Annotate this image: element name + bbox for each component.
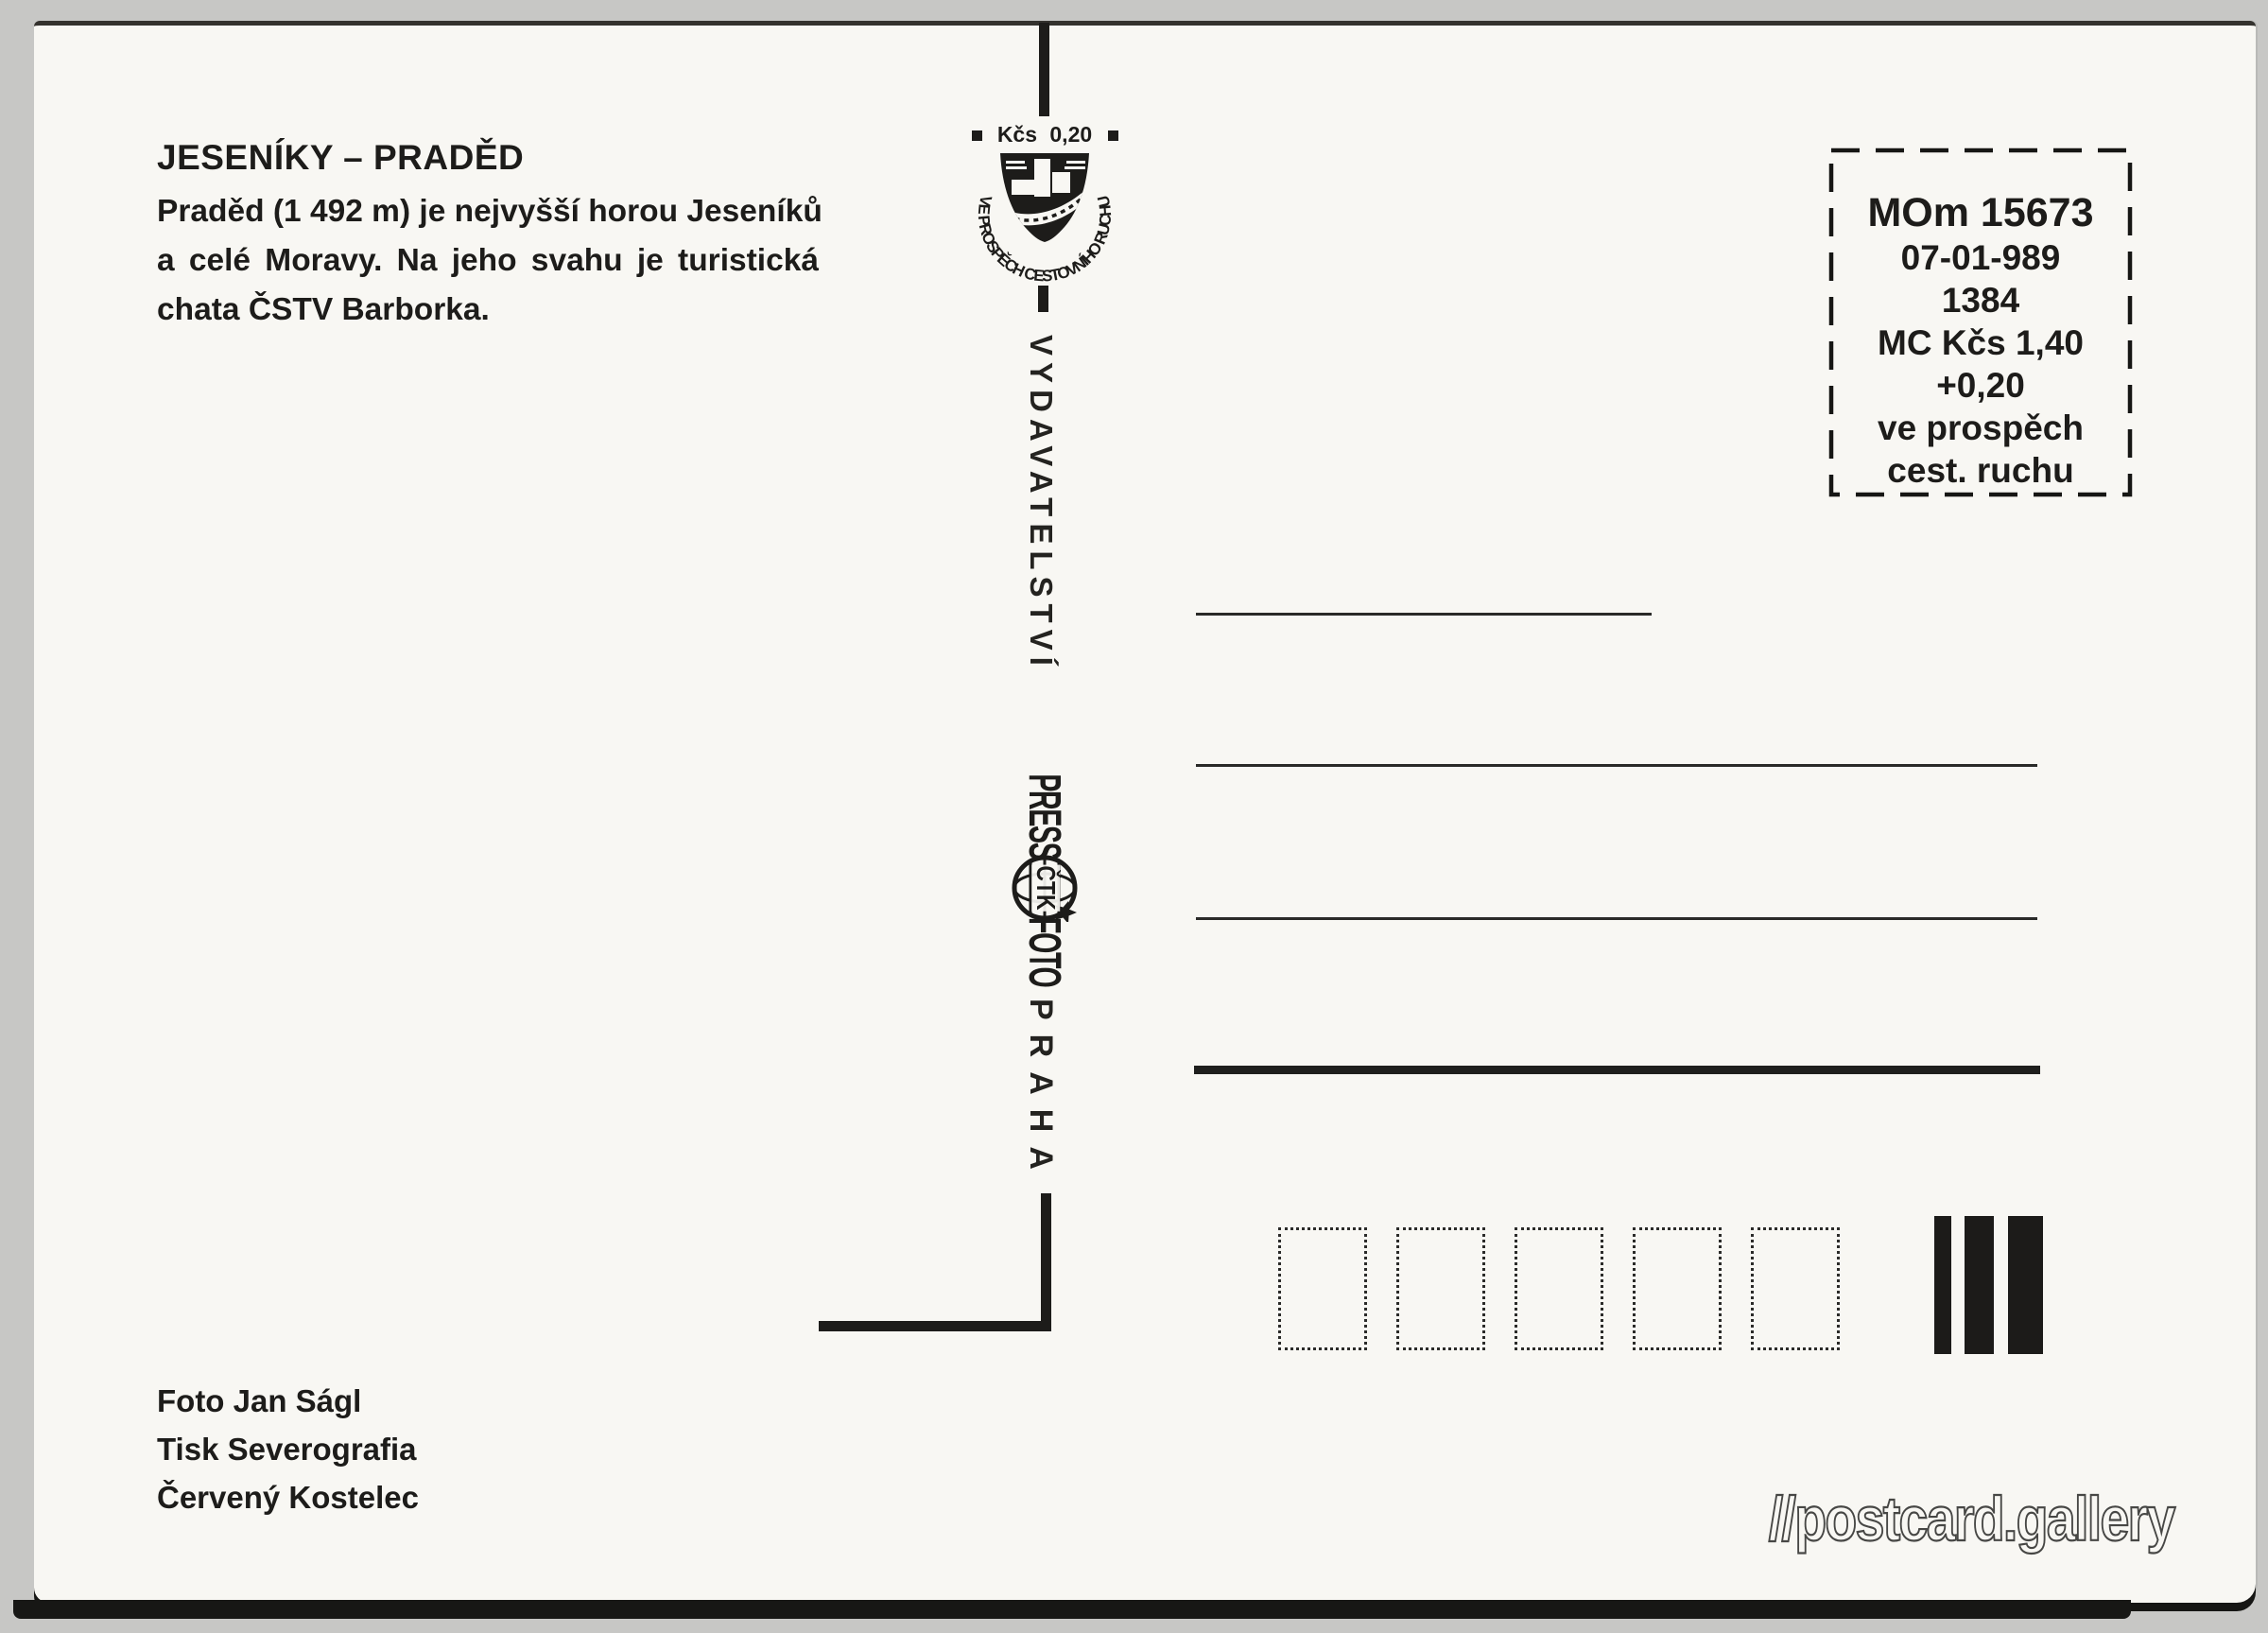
credit-line: Červený Kostelec	[157, 1473, 419, 1521]
franking-line: 07-01-989	[1828, 236, 2133, 279]
publisher-vertical-text: VYDAVATELSTVÍ	[1023, 335, 1059, 672]
franking-bar	[1965, 1216, 1994, 1354]
stamp-square-right	[1108, 130, 1118, 141]
franking-bar	[2008, 1216, 2043, 1354]
franking-line: MOm 15673	[1828, 189, 2133, 236]
press-logo-foto: FOTO	[1018, 917, 1070, 986]
gallery-watermark: //postcard.gallery	[1769, 1483, 2170, 1555]
description-line: chata ČSTV Barborka.	[157, 286, 819, 335]
pressfoto-ctk-logo: PRESS ČTK FOTO	[1007, 758, 1082, 995]
postal-code-box	[1633, 1227, 1722, 1350]
description-line: a celé Moravy. Na jeho svahu je turistic…	[157, 236, 819, 286]
postcard-title: JESENÍKY – PRADĚD	[157, 138, 524, 178]
divider-bottom-arm	[819, 1321, 1051, 1331]
city-vertical-text: PRAHA	[1022, 999, 1059, 1184]
ctk-label: ČTK	[1031, 865, 1060, 912]
globe-icon: ČTK	[1011, 854, 1079, 922]
postal-code-box	[1515, 1227, 1603, 1350]
postal-code-box	[1278, 1227, 1367, 1350]
franking-bar	[1934, 1216, 1951, 1354]
address-line-thick	[1194, 1066, 2040, 1074]
description-line: Praděd (1 492 m) je nejvyšší horou Jesen…	[157, 187, 819, 236]
printer-credits: Foto Jan Ságl Tisk Severografia Červený …	[157, 1377, 419, 1521]
divider-top-bar	[1039, 23, 1049, 116]
franking-line: 1384	[1828, 279, 2133, 321]
address-line	[1196, 613, 1652, 616]
address-line	[1196, 764, 2037, 767]
franking-line: MC Kčs 1,40	[1828, 321, 2133, 364]
tourism-stamp-emblem: Kčs 0,20 VE PROSPĚCH CESTOVNÍHO RUCHU	[962, 121, 1128, 287]
divider-dash	[1038, 286, 1048, 312]
franking-info-box: MOm 15673 07-01-989 1384 MC Kčs 1,40 +0,…	[1828, 148, 2133, 497]
stamp-value: Kčs 0,20	[997, 122, 1092, 147]
franking-line: +0,20	[1828, 364, 2133, 407]
credit-line: Foto Jan Ságl	[157, 1377, 419, 1425]
press-logo-press: PRESS	[1018, 773, 1070, 859]
postcard-description: Praděd (1 492 m) je nejvyšší horou Jesen…	[157, 187, 819, 335]
franking-line: cest. ruchu	[1828, 449, 2133, 492]
address-line	[1196, 917, 2037, 920]
postal-code-box	[1751, 1227, 1840, 1350]
credit-line: Tisk Severografia	[157, 1425, 419, 1473]
stamp-square-left	[972, 130, 982, 141]
franking-line: ve prospěch	[1828, 407, 2133, 449]
scan-shadow	[13, 1600, 2131, 1619]
divider-bottom-bar	[1041, 1193, 1051, 1331]
postal-code-box	[1396, 1227, 1485, 1350]
